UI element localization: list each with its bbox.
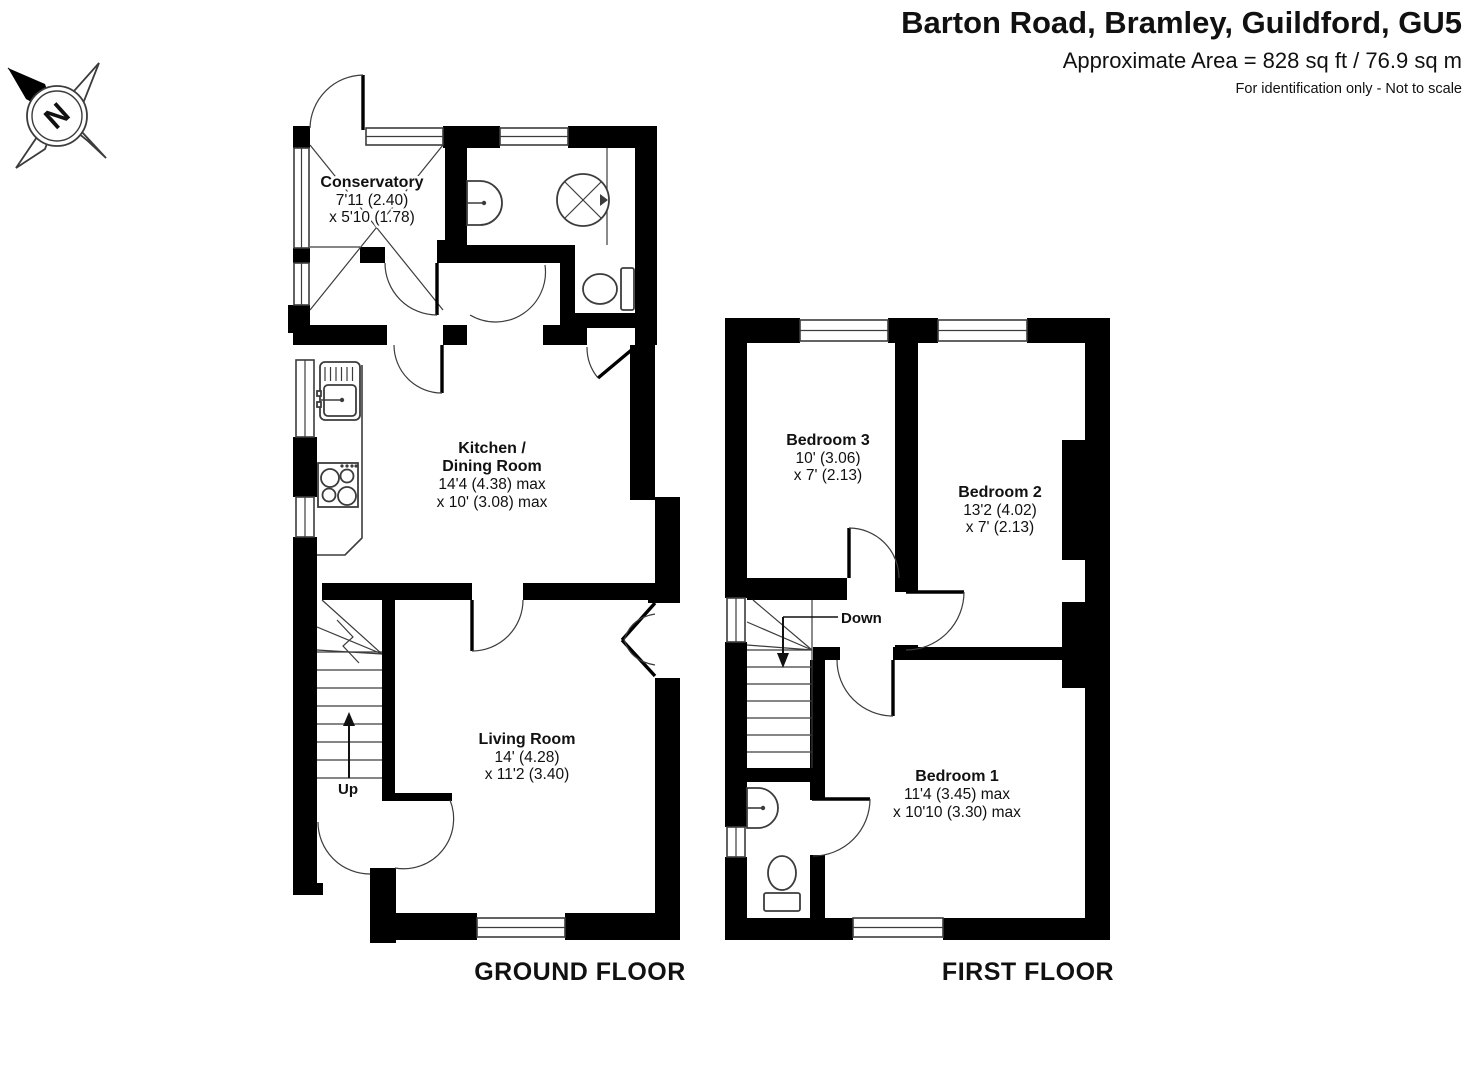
- bathroom-sink-icon: [747, 788, 778, 828]
- door-bedroom3: [849, 528, 899, 578]
- floor-plan-svg: Barton Road, Bramley, Guildford, GU5 App…: [0, 0, 1469, 1080]
- door-front: [310, 75, 363, 130]
- room-dim: x 7' (2.13): [794, 467, 862, 484]
- up-label: Up: [338, 781, 358, 798]
- bedroom3-room-label: Bedroom 3 10' (3.06) x 7' (2.13): [786, 432, 870, 484]
- room-dim: 10' (3.06): [796, 450, 861, 467]
- approximate-area: Approximate Area = 828 sq ft / 76.9 sq m: [1063, 48, 1462, 73]
- window: [938, 320, 1027, 341]
- door-kitchen-rear: [587, 347, 635, 378]
- room-name: Bedroom 3: [786, 432, 870, 449]
- page-title: Barton Road, Bramley, Guildford, GU5: [901, 5, 1462, 40]
- door-hall: [318, 822, 370, 874]
- window: [366, 128, 443, 145]
- window: [477, 918, 565, 937]
- window: [727, 598, 745, 642]
- down-label: Down: [841, 610, 882, 627]
- bedroom2-room-label: Bedroom 2 13'2 (4.02) x 7' (2.13): [958, 484, 1042, 536]
- shower-icon: [557, 148, 609, 245]
- ground-floor-label: GROUND FLOOR: [474, 958, 686, 986]
- room-name: Conservatory: [320, 174, 423, 191]
- window: [727, 827, 745, 857]
- door-bedroom1: [837, 660, 893, 716]
- toilet-icon: [764, 856, 800, 911]
- room-dim: 14' (4.28): [495, 749, 560, 766]
- kitchen-sink-icon: [317, 362, 360, 420]
- french-doors: [622, 603, 655, 676]
- conservatory-room-label: Conservatory 7'11 (2.40) x 5'10 (1.78): [320, 174, 423, 226]
- window: [500, 128, 568, 145]
- room-dim: x 5'10 (1.78): [329, 209, 415, 226]
- room-dim: 7'11 (2.40): [336, 192, 408, 209]
- bedroom1-room-label: Bedroom 1 11'4 (3.45) max x 10'10 (3.30)…: [893, 768, 1021, 821]
- bathroom-sink-icon: [467, 181, 502, 225]
- window: [294, 263, 309, 305]
- ground-floor-plan: Up Conservatory 7'11 (2.40) x 5'10 (1.78…: [288, 75, 686, 986]
- room-name: Living Room: [479, 731, 576, 748]
- stairs-up: Up: [317, 600, 382, 798]
- first-floor-label: FIRST FLOOR: [942, 958, 1114, 986]
- room-name: Dining Room: [442, 458, 542, 475]
- room-name: Kitchen /: [458, 440, 526, 457]
- window: [296, 360, 314, 437]
- room-dim: 13'2 (4.02): [963, 502, 1037, 519]
- toilet-icon: [583, 268, 634, 310]
- ground-floor-walls: [288, 126, 680, 943]
- room-dim: x 7' (2.13): [966, 519, 1034, 536]
- kitchen-room-label: Kitchen / Dining Room 14'4 (4.38) max x …: [437, 440, 548, 511]
- conservatory-glazing-lines: [310, 145, 443, 310]
- room-dim: 11'4 (3.45) max: [904, 786, 1010, 803]
- header: Barton Road, Bramley, Guildford, GU5 App…: [901, 5, 1462, 97]
- window: [294, 148, 309, 248]
- room-name: Bedroom 1: [915, 768, 999, 785]
- window: [296, 497, 314, 537]
- room-dim: x 11'2 (3.40): [485, 766, 570, 783]
- window: [853, 918, 943, 937]
- door-kitchen-living: [472, 600, 523, 651]
- first-floor-plan: Down Bedroom 3 10' (3.06) x 7' (2.13) Be…: [725, 318, 1114, 986]
- floorplan-page: Barton Road, Bramley, Guildford, GU5 App…: [0, 0, 1469, 1080]
- disclaimer-note: For identification only - Not to scale: [1236, 81, 1462, 97]
- door-living-room: [395, 800, 454, 869]
- room-dim: x 10' (3.08) max: [437, 494, 548, 511]
- down-arrow: [777, 653, 789, 668]
- compass-icon: N: [8, 63, 106, 168]
- living-room-label: Living Room 14' (4.28) x 11'2 (3.40): [479, 731, 576, 783]
- door-bedroom2: [906, 592, 964, 650]
- window: [800, 320, 888, 341]
- up-arrow: [343, 712, 355, 726]
- room-name: Bedroom 2: [958, 484, 1042, 501]
- room-dim: x 10'10 (3.30) max: [893, 804, 1021, 821]
- door-kitchen: [394, 345, 442, 393]
- room-dim: 14'4 (4.38) max: [438, 476, 545, 493]
- door-bathroom: [812, 799, 870, 856]
- hob-icon: [318, 463, 358, 507]
- door-rear-lobby: [470, 265, 545, 322]
